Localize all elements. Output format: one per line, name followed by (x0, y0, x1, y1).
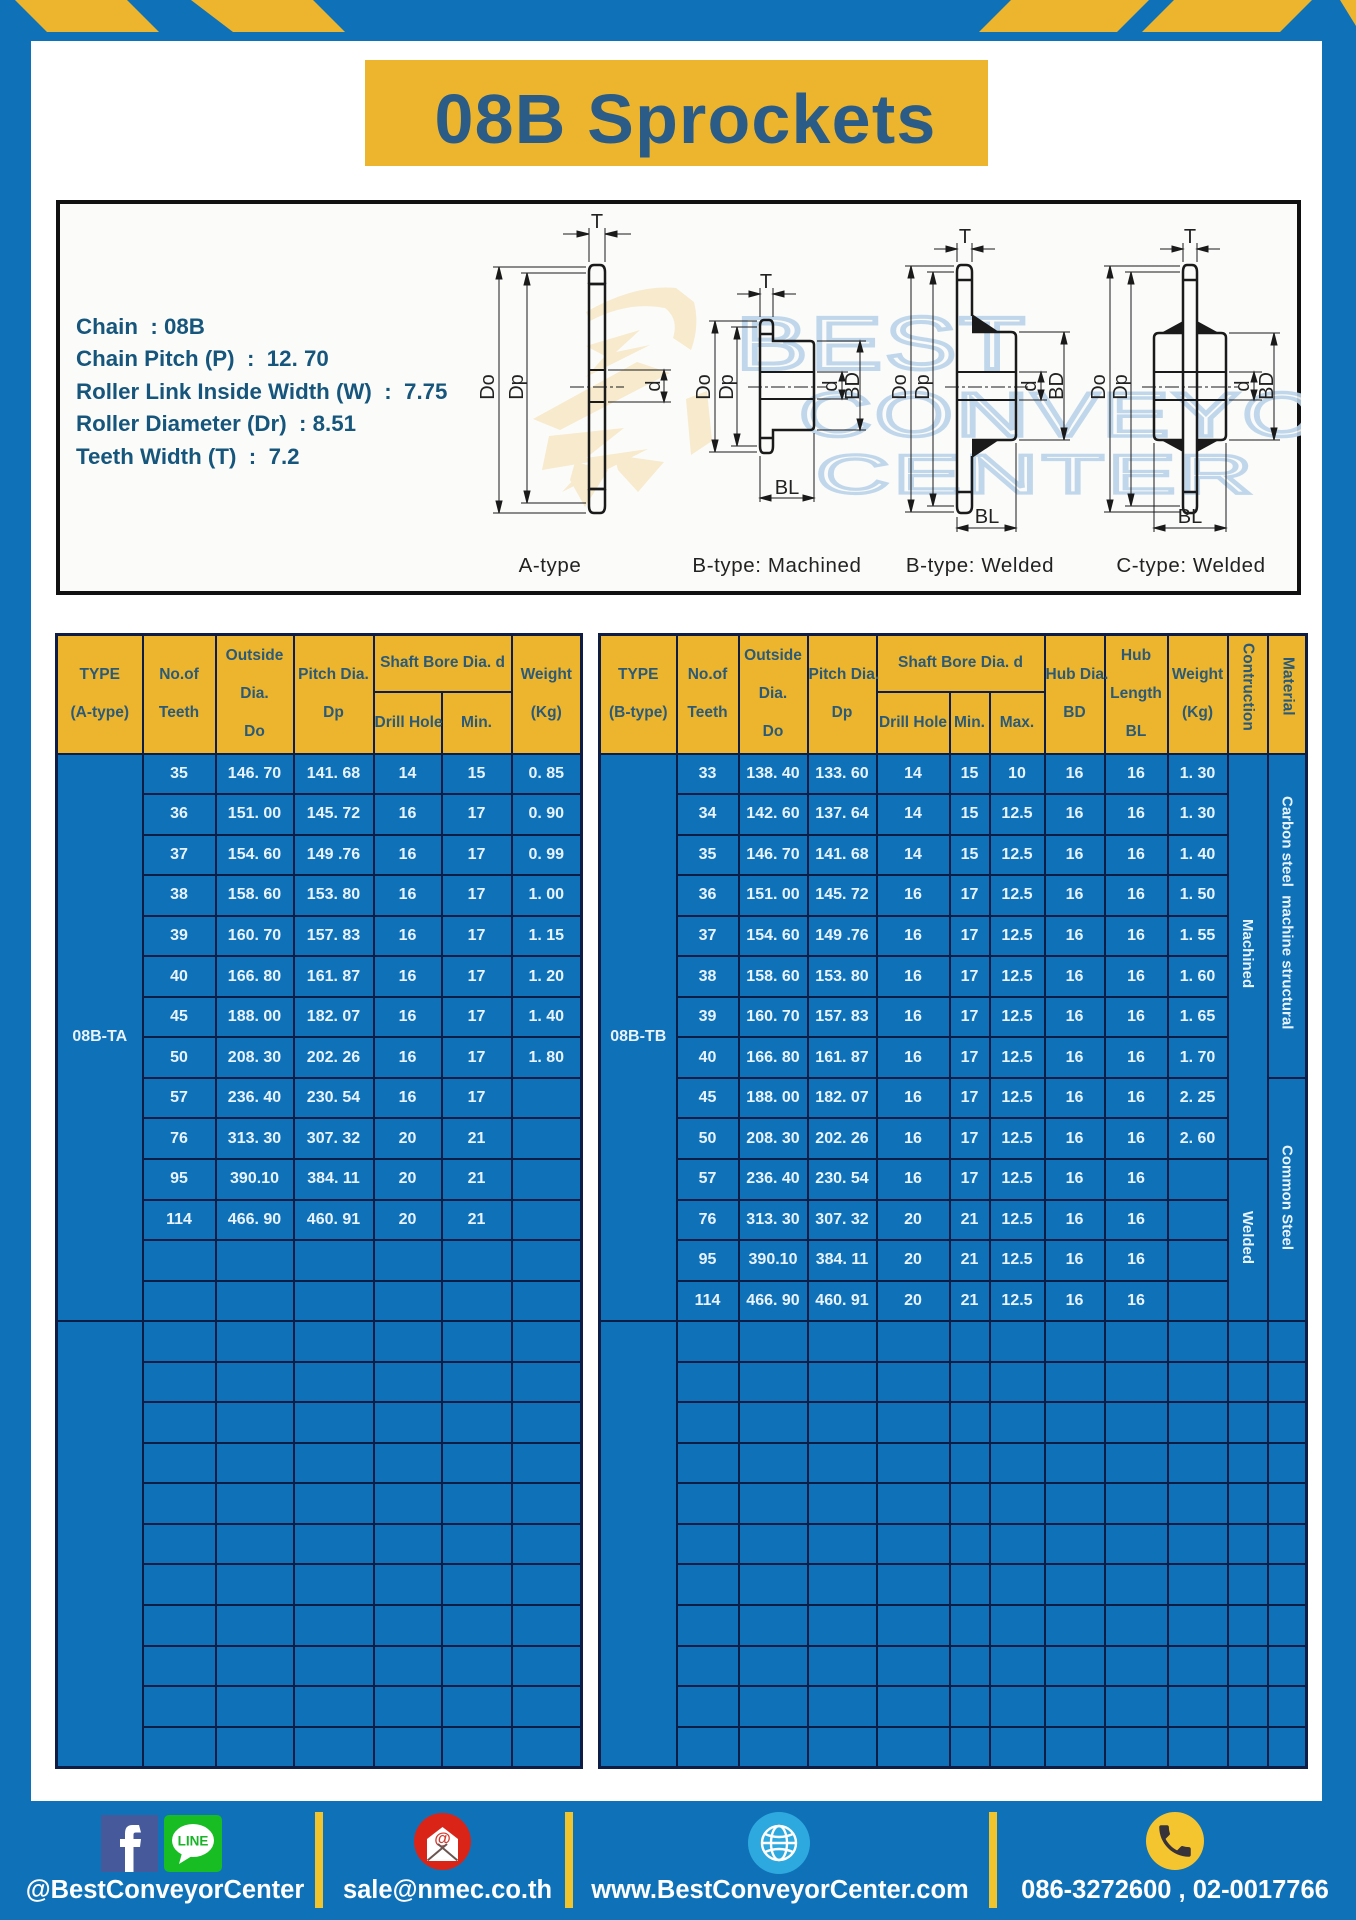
svg-text:Do: Do (477, 374, 499, 400)
svg-text:BD: BD (842, 372, 864, 400)
svg-text:B-type: Welded: B-type: Welded (906, 554, 1054, 577)
svg-text:CENTER: CENTER (816, 444, 1256, 505)
svg-text:BL: BL (975, 506, 999, 528)
svg-text:A-type: A-type (519, 554, 582, 577)
svg-text:d: d (1019, 380, 1041, 391)
svg-text:Dp: Dp (912, 374, 934, 400)
svg-text:C-type: Welded: C-type: Welded (1116, 554, 1265, 577)
svg-text:LINE: LINE (178, 1834, 209, 1849)
svg-text:BL: BL (775, 477, 799, 499)
svg-text:Dp: Dp (1110, 374, 1132, 400)
svg-text:T: T (1184, 226, 1196, 248)
svg-text:d: d (643, 380, 665, 391)
svg-text:Dp: Dp (716, 374, 738, 400)
svg-text:Do: Do (1088, 374, 1110, 400)
svg-text:Do: Do (889, 374, 911, 400)
svg-text:BD: BD (1046, 372, 1068, 400)
svg-text:Dp: Dp (506, 374, 528, 400)
svg-text:BL: BL (1178, 506, 1202, 528)
svg-text:T: T (760, 271, 772, 293)
svg-text:T: T (959, 226, 971, 248)
svg-text:B-type: Machined: B-type: Machined (692, 554, 861, 577)
svg-text:@: @ (434, 1829, 451, 1848)
svg-text:d: d (820, 380, 842, 391)
svg-text:d: d (1232, 380, 1254, 391)
svg-text:BD: BD (1256, 372, 1278, 400)
svg-text:T: T (591, 211, 603, 233)
svg-text:Do: Do (693, 374, 715, 400)
